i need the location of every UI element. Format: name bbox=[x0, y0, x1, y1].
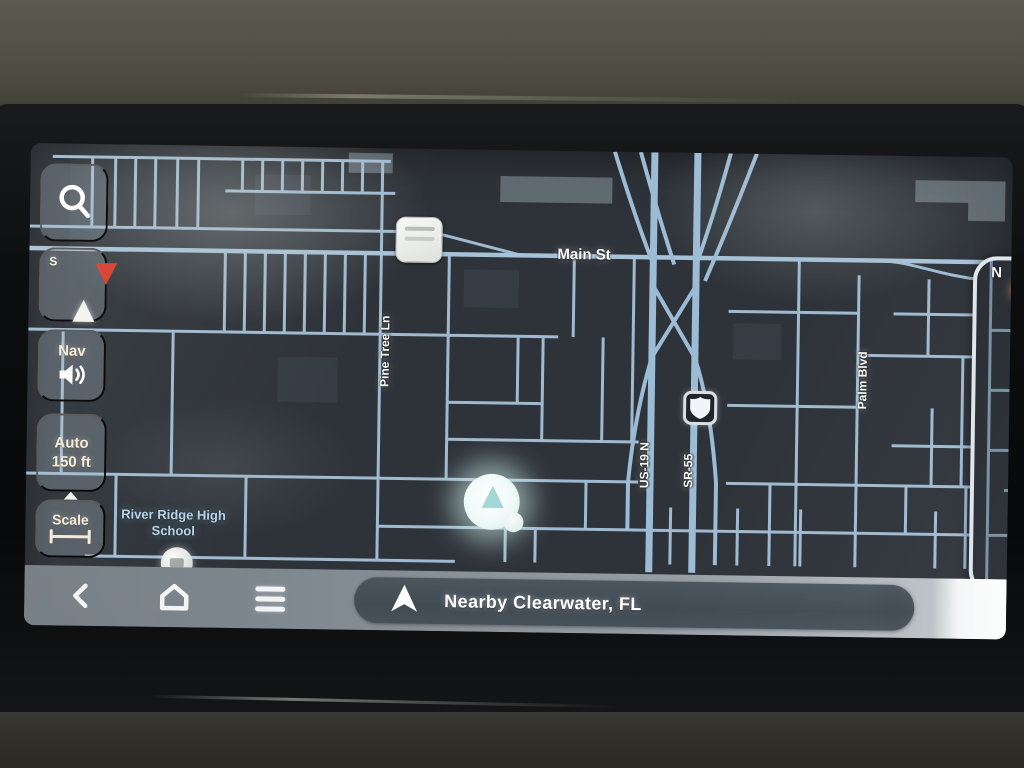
compass-south-label: S bbox=[49, 254, 57, 268]
location-marker bbox=[455, 467, 530, 542]
scale-button[interactable]: Scale bbox=[35, 499, 106, 558]
street-label-us19: US-19 N bbox=[637, 420, 652, 510]
destination-pill[interactable]: Nearby Clearwater, FL bbox=[354, 577, 915, 631]
minimap-roads bbox=[972, 260, 1012, 592]
auto-zoom-mode: Auto bbox=[54, 433, 88, 453]
search-icon bbox=[55, 181, 94, 225]
back-button[interactable] bbox=[60, 565, 101, 626]
photo-backdrop: Main St Pine Tree Ln US-19 N SR-55 Palm … bbox=[0, 0, 1024, 768]
nav-volume-button[interactable]: Nav bbox=[37, 329, 106, 402]
menu-button[interactable] bbox=[250, 568, 291, 629]
nav-label: Nav bbox=[58, 342, 86, 359]
minimap-panel[interactable]: N bbox=[968, 256, 1012, 596]
map-canvas[interactable]: Main St Pine Tree Ln US-19 N SR-55 Palm … bbox=[25, 143, 1013, 580]
home-icon bbox=[156, 581, 192, 614]
infotainment-screen: Main St Pine Tree Ln US-19 N SR-55 Palm … bbox=[24, 143, 1013, 640]
dashboard-top bbox=[0, 0, 1024, 118]
north-indicator: N bbox=[991, 264, 1002, 281]
street-label-palm-blvd: Palm Blvd bbox=[855, 330, 870, 430]
navigation-arrow-icon bbox=[390, 583, 419, 618]
scale-label: Scale bbox=[52, 511, 89, 528]
street-label-sr55: SR-55 bbox=[681, 436, 696, 506]
street-label-main-st: Main St bbox=[557, 246, 611, 264]
bar-glare bbox=[932, 578, 1007, 639]
chevron-up-icon bbox=[64, 492, 78, 500]
menu-icon bbox=[255, 586, 285, 591]
poi-label-school: River Ridge High School bbox=[115, 506, 231, 540]
highway-shield-icon bbox=[683, 391, 718, 426]
location-bump bbox=[503, 512, 523, 532]
scale-ruler-icon bbox=[48, 529, 92, 547]
home-button[interactable] bbox=[152, 567, 197, 628]
location-arrow-icon bbox=[482, 486, 504, 508]
auto-zoom-level: 150 ft bbox=[52, 452, 91, 472]
street-label-pine-tree-ln: Pine Tree Ln bbox=[377, 291, 393, 411]
dashboard-bottom bbox=[0, 712, 1024, 768]
speaker-icon bbox=[56, 362, 86, 389]
back-chevron-icon bbox=[68, 581, 92, 611]
auto-zoom-button[interactable]: Auto 150 ft bbox=[36, 413, 107, 492]
compass-button[interactable]: S bbox=[38, 247, 107, 322]
poi-icon[interactable] bbox=[395, 216, 443, 263]
search-button[interactable] bbox=[40, 163, 109, 242]
nearby-status-text: Nearby Clearwater, FL bbox=[444, 591, 642, 615]
